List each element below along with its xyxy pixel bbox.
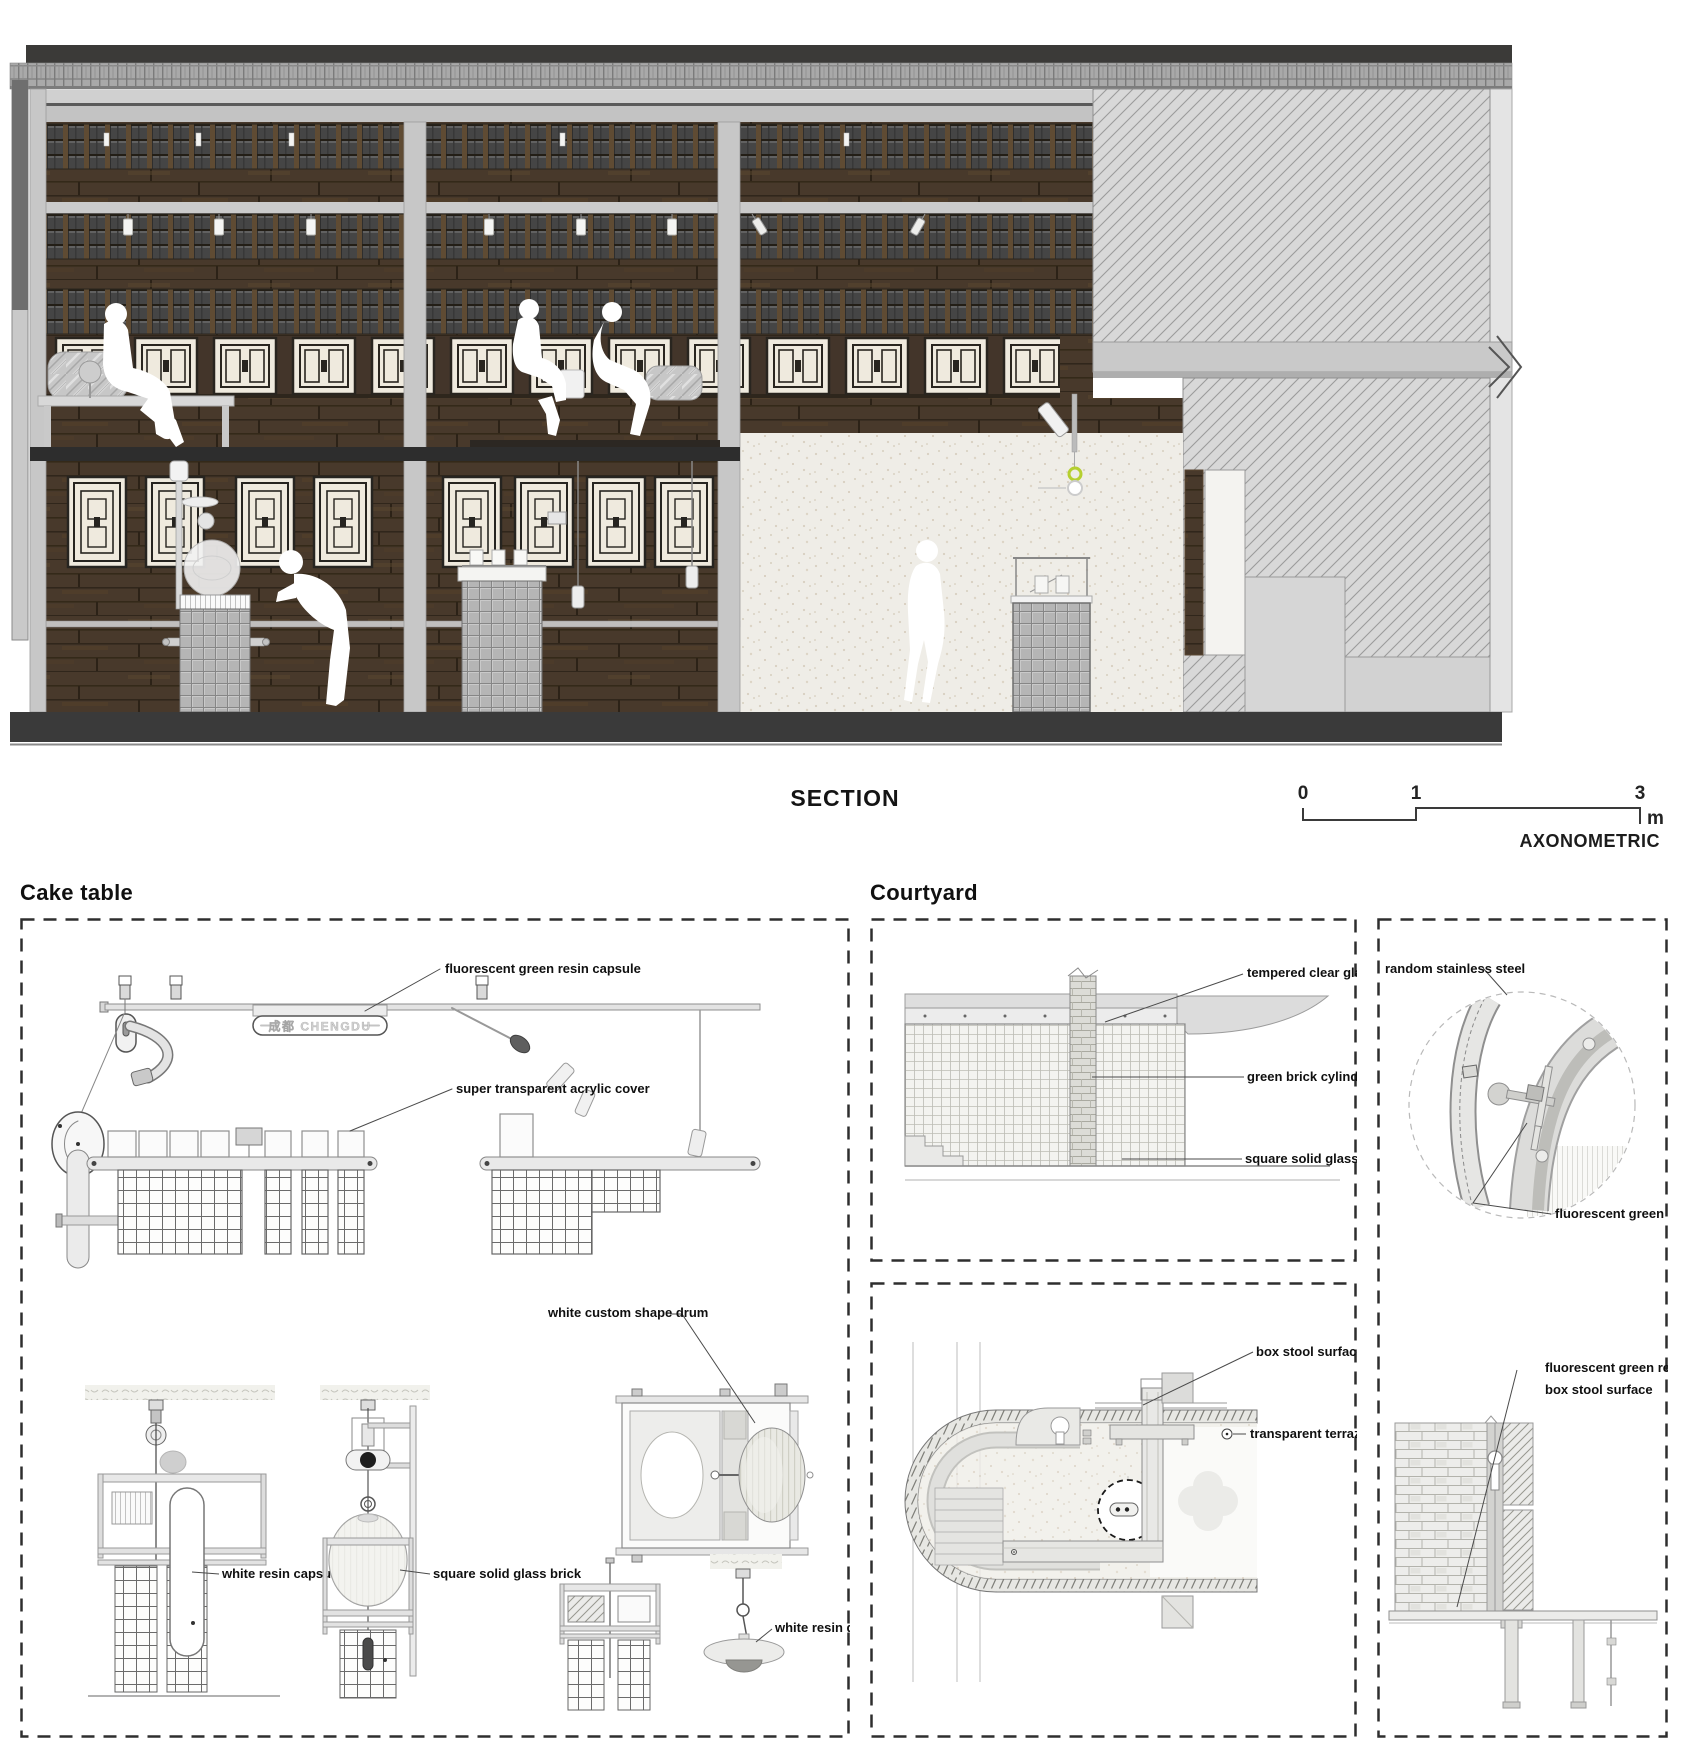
label-box-stool: box stool surface: [1256, 1344, 1357, 1359]
drum-plan: white custom shape drum: [547, 1305, 813, 1562]
label-fluorescent-capsule: fluorescent green resin capsule: [445, 961, 641, 976]
glass-brick-bases: [118, 1170, 660, 1254]
label-resin-stool-1: fluorescent green resin: [1545, 1360, 1668, 1375]
pulley-tower-elevation: white resin capsule: [85, 1385, 342, 1696]
conveyor-right: [480, 1157, 760, 1170]
courtyard-detail-panel: random stainless steel fluorescent green…: [1377, 918, 1668, 1738]
svg-text:0: 0: [1298, 783, 1309, 804]
courtyard-floor: [740, 433, 1183, 712]
courtyard-heading: Courtyard: [870, 880, 978, 906]
courtyard-plan-panel: box stool surface transparent terrazzo: [870, 1282, 1357, 1738]
label-resin-stool-2: box stool surface: [1545, 1382, 1653, 1397]
scale-bar: 0 1 3 m AXONOMETRIC: [1298, 783, 1664, 851]
ground-band: [10, 712, 1502, 745]
acrylic-covers: [108, 1114, 533, 1157]
ball-lamp: [79, 361, 101, 383]
stainless-circle-detail: random stainless steel fluorescent green…: [1385, 961, 1668, 1226]
lower-storey: [30, 461, 740, 712]
conveyor-left: [87, 1157, 377, 1170]
cake-table-panel: 成都 CHENGDU fluorescent green resin capsu…: [20, 918, 850, 1738]
cake-table-elevation: 成都 CHENGDU fluorescent green resin capsu…: [52, 961, 760, 1268]
courtyard-wall-panel: tempered clear glass green brick cylinde…: [870, 918, 1357, 1262]
label-glass-brick: square solid glass brick: [433, 1566, 582, 1581]
white-resin-capsule-shape: [170, 1488, 204, 1656]
label-green-resin: fluorescent green resin: [1555, 1206, 1668, 1221]
resin-disc-pendant: white resin disc: [704, 1554, 850, 1672]
u-bench-plan: box stool surface transparent terrazzo: [905, 1342, 1357, 1682]
label-terrazzo: transparent terrazzo: [1250, 1426, 1357, 1441]
label-stainless: random stainless steel: [1385, 961, 1525, 976]
label-acrylic-cover: super transparent acrylic cover: [456, 1081, 650, 1096]
hand-rail: [46, 621, 740, 627]
ceiling-hangers: [119, 976, 488, 999]
svg-text:1: 1: [1411, 783, 1422, 804]
section-drawing: SECTION 0 1 3 m AXONOMETRIC: [0, 0, 1700, 870]
brick-cylinder-shape: [1070, 976, 1096, 1166]
axonometric-label: AXONOMETRIC: [1520, 831, 1661, 851]
label-tempered-glass: tempered clear glass: [1247, 965, 1357, 980]
left-cut-wall: [12, 80, 28, 640]
label-brick-cylinder: green brick cylinder: [1247, 1069, 1357, 1084]
svg-text:m: m: [1647, 808, 1664, 829]
glass-wall-elevation: tempered clear glass green brick cylinde…: [905, 965, 1357, 1180]
svg-text:3: 3: [1635, 783, 1646, 804]
chengdu-text: 成都 CHENGDU: [268, 1019, 371, 1034]
label-custom-drum: white custom shape drum: [547, 1305, 708, 1320]
label-resin-disc: white resin disc: [774, 1620, 850, 1635]
roof: [10, 45, 1512, 89]
cake-table-heading: Cake table: [20, 880, 133, 906]
sphere-elevation: square solid glass brick: [320, 1385, 582, 1698]
stool-section-detail: fluorescent green resin box stool surfac…: [1389, 1360, 1668, 1708]
label-glass-brick-wall: square solid glass brick: [1245, 1151, 1357, 1166]
box-stool-bar: [1142, 1388, 1163, 1560]
section-title: SECTION: [790, 785, 899, 811]
floor-slab: [30, 447, 740, 461]
glass-brick-wall: [905, 1024, 1185, 1166]
eave-beams: [30, 90, 1093, 122]
sheet: SECTION 0 1 3 m AXONOMETRIC Cake table C…: [0, 0, 1700, 1743]
